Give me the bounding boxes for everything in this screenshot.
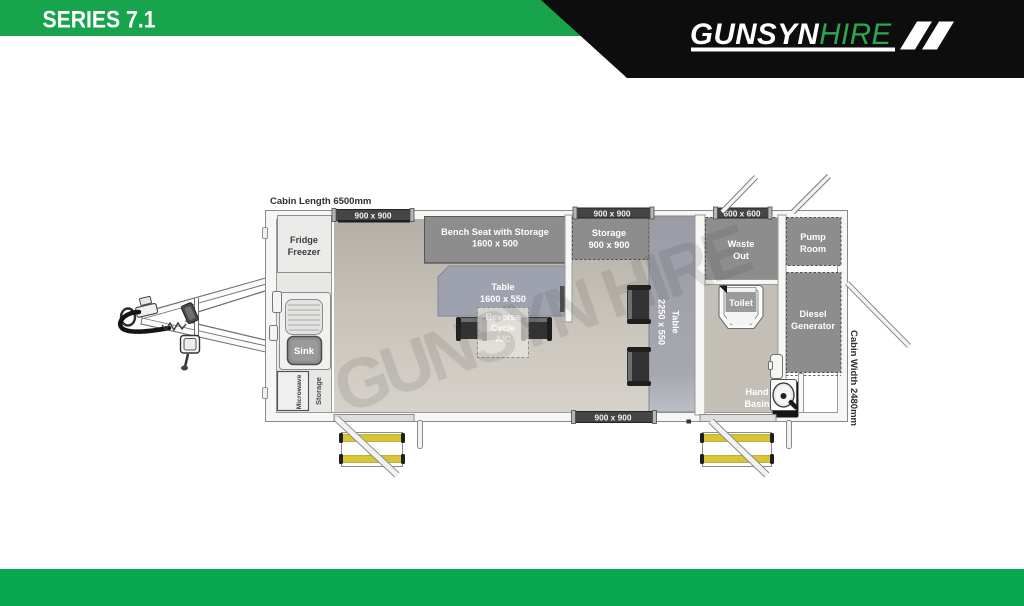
svg-text:Cabin Length 6500mm: Cabin Length 6500mm: [270, 196, 371, 207]
svg-text:Room: Room: [800, 244, 826, 254]
svg-text:2250 x 550: 2250 x 550: [657, 299, 667, 345]
svg-text:Fridge: Fridge: [290, 235, 318, 245]
svg-text:Pump: Pump: [800, 232, 826, 242]
svg-text:900 x 900: 900 x 900: [595, 413, 632, 423]
svg-text:Storage: Storage: [592, 228, 626, 238]
svg-text:Generator: Generator: [791, 321, 835, 331]
svg-text:Storage: Storage: [314, 377, 323, 405]
svg-text:Hand: Hand: [746, 387, 769, 397]
svg-text:Toilet: Toilet: [729, 298, 753, 308]
svg-text:900 x 900: 900 x 900: [594, 209, 631, 219]
svg-text:Microwave: Microwave: [296, 374, 303, 409]
svg-text:900 x 900: 900 x 900: [355, 211, 392, 221]
svg-text:Table: Table: [671, 310, 681, 333]
svg-text:Freezer: Freezer: [288, 247, 321, 257]
svg-text:Diesel: Diesel: [799, 309, 826, 319]
svg-text:Cabin Width 2480mm: Cabin Width 2480mm: [848, 330, 859, 426]
svg-text:Sink: Sink: [294, 346, 315, 357]
svg-text:Basin: Basin: [744, 399, 769, 409]
svg-text:1600 x 500: 1600 x 500: [472, 239, 518, 249]
svg-text:Bench Seat with Storage: Bench Seat with Storage: [441, 227, 549, 237]
